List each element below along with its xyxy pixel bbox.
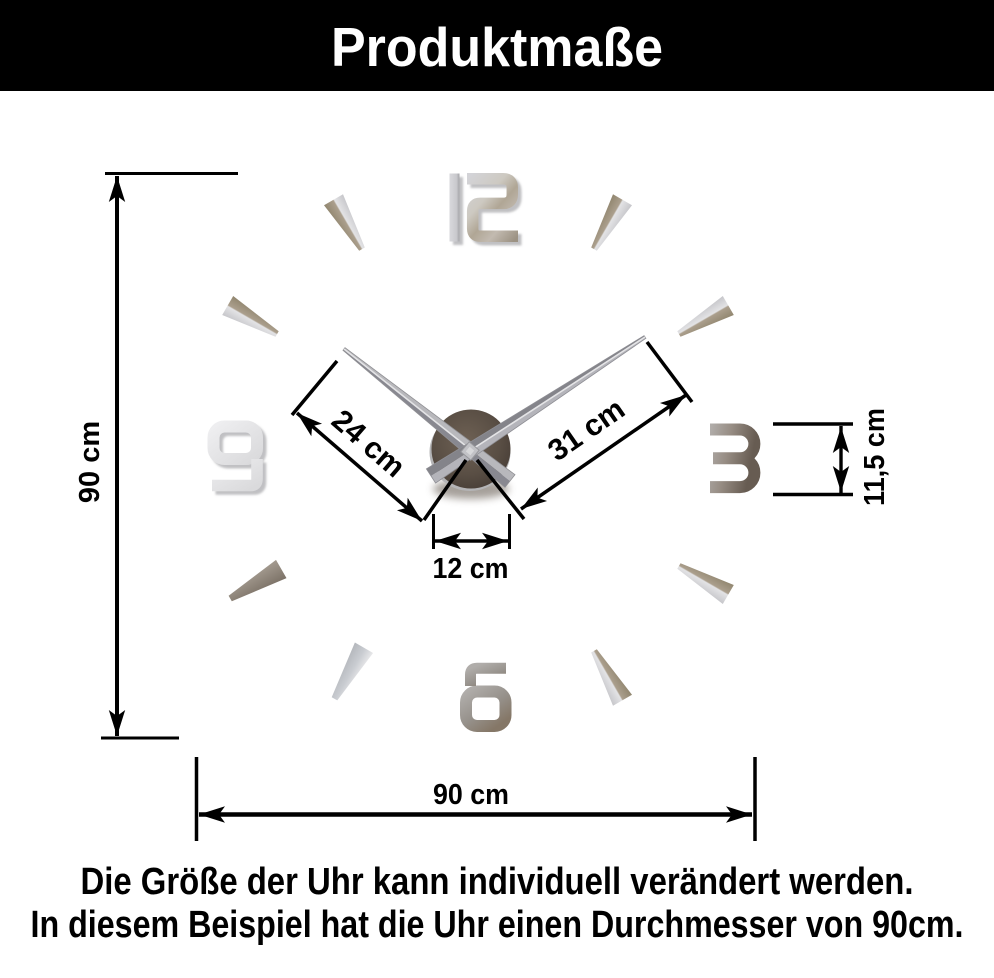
svg-text:11,5 cm: 11,5 cm (859, 408, 891, 506)
svg-text:90 cm: 90 cm (74, 421, 106, 503)
svg-text:Die Größe der Uhr kann individ: Die Größe der Uhr kann individuell verän… (81, 861, 914, 903)
svg-text:In diesem Beispiel hat die Uhr: In diesem Beispiel hat die Uhr einen Dur… (31, 904, 964, 946)
svg-text:12 cm: 12 cm (433, 553, 509, 585)
svg-text:Produktmaße: Produktmaße (331, 16, 663, 78)
svg-text:90 cm: 90 cm (433, 779, 509, 811)
